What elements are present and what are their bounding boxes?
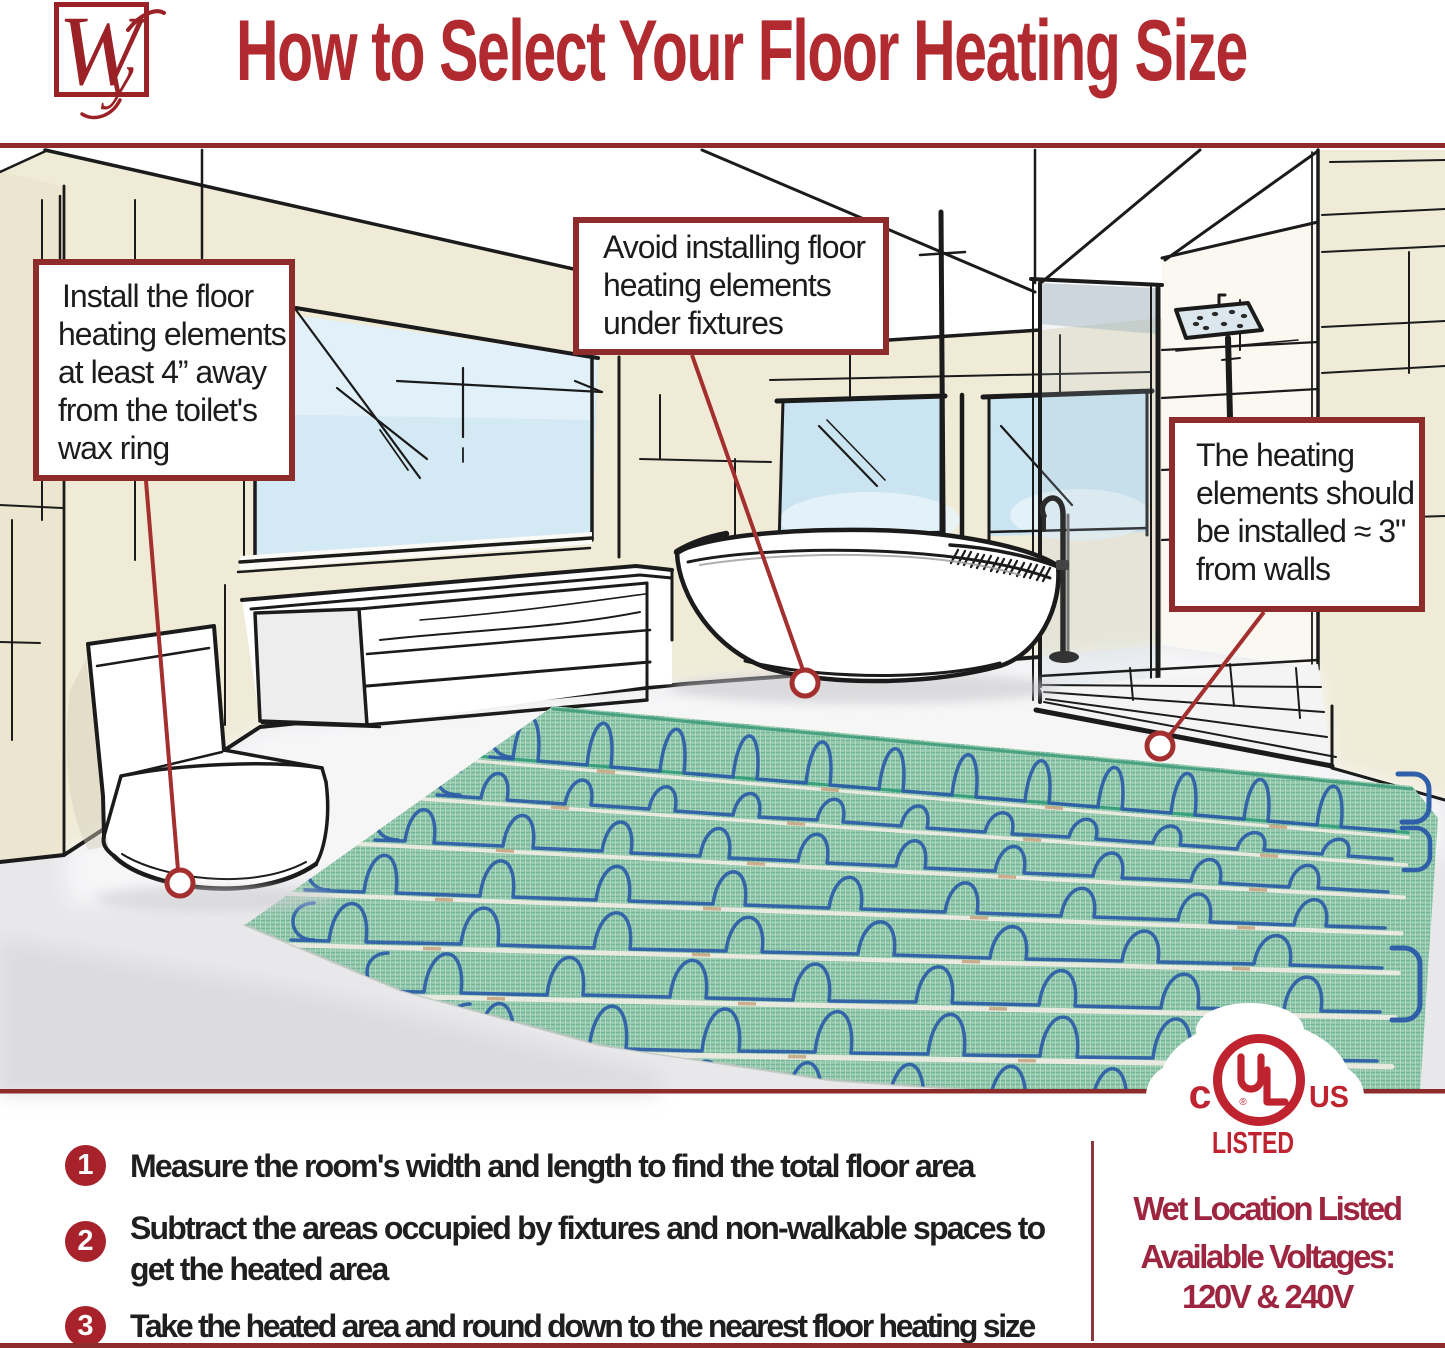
svg-text:®: ® [1239,1097,1247,1108]
svg-text:W: W [58,0,149,106]
svg-text:US: US [1309,1079,1349,1114]
svg-text:c: c [1189,1071,1212,1117]
svg-text:y: y [100,42,134,110]
svg-text:LISTED: LISTED [1212,1125,1294,1160]
